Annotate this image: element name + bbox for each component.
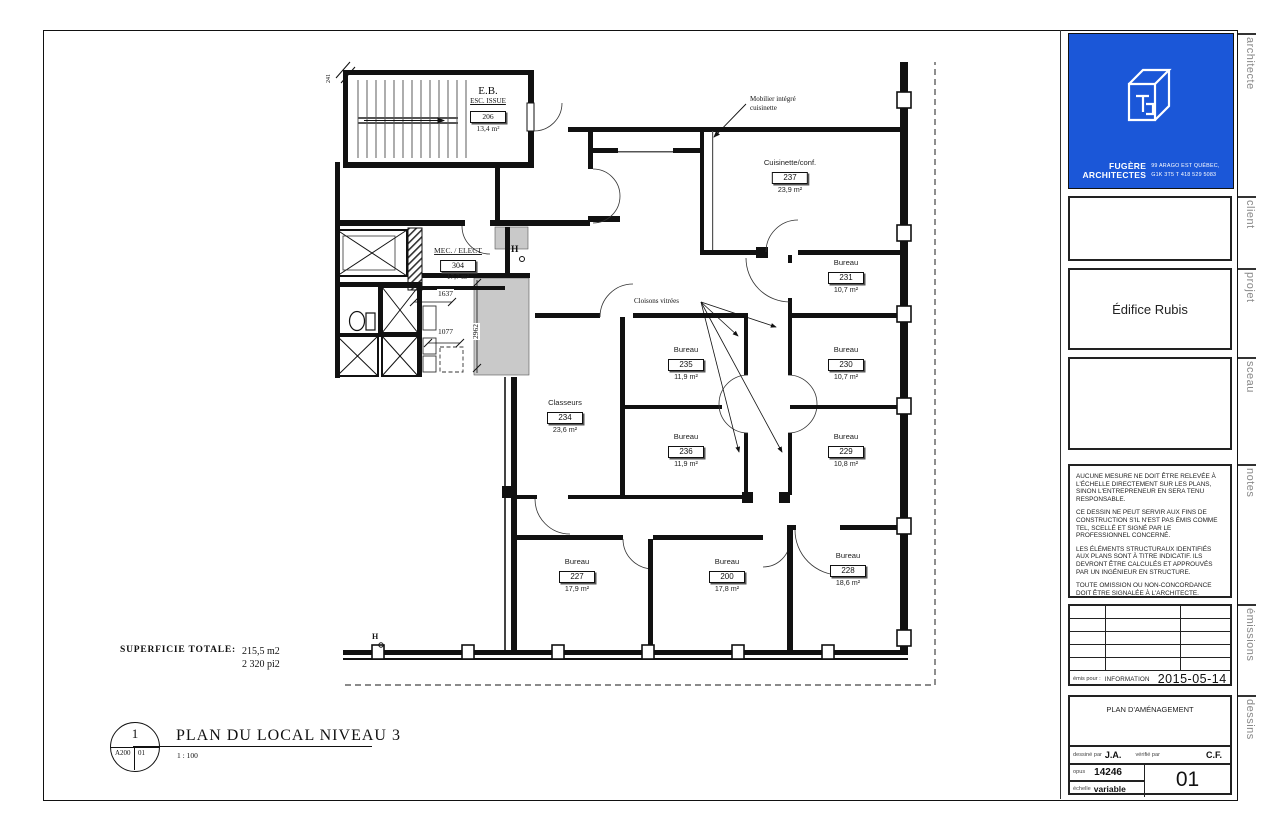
side-label-sceau: sceau (1240, 361, 1256, 393)
room-area: 23,6 m² (547, 425, 583, 434)
room-name: E.B. (470, 85, 506, 97)
dimension-2962: 2962 (471, 323, 480, 340)
room-name: Bureau (709, 557, 745, 566)
dessins-section: PLAN D'AMÉNAGEMENT dessiné par J.A. véri… (1068, 695, 1232, 795)
room-number-tag: 206 (470, 111, 506, 123)
superficie-label: SUPERFICIE TOTALE: (120, 645, 236, 671)
opus-value: 14246 (1094, 767, 1122, 778)
room-label-231: Bureau23110,7 m² (828, 258, 864, 294)
room-area: 23,9 m² (764, 185, 816, 194)
room-label-229: Bureau22910,8 m² (828, 432, 864, 468)
room-name: Classeurs (547, 398, 583, 407)
side-label-architecte: architecte (1240, 37, 1256, 90)
annotation-mobilier: Mobilier intégré cuisinette (750, 95, 796, 112)
room-area: 11,9 m² (668, 459, 704, 468)
room-number-tag: 228 (830, 565, 866, 577)
room-area: 10,7 m² (828, 285, 864, 294)
drawn-by-value: J.A. (1105, 750, 1122, 760)
side-label-tick (1238, 268, 1256, 270)
side-label-dessins: dessins (1240, 699, 1256, 740)
room-label-stair: E.B. ESC. ISSUE 206 13,4 m² (470, 85, 506, 133)
room-number-tag: 227 (559, 571, 595, 583)
side-label-tick (1238, 695, 1256, 697)
dimension-241: 241 (326, 73, 332, 84)
note-paragraph: LES ÉLÉMENTS STRUCTURAUX IDENTIFIÉS AUX … (1076, 546, 1224, 576)
emissions-section: émis pour : INFORMATION 2015-05-14 (1068, 604, 1232, 686)
side-label-tick (1238, 357, 1256, 359)
room-label-227: Bureau22717,9 m² (559, 557, 595, 593)
emis-pour-label: émis pour : (1073, 676, 1101, 682)
emis-pour-value: INFORMATION (1105, 676, 1150, 683)
room-label-228: Bureau22818,6 m² (830, 551, 866, 587)
room-label-mec: MEC. / ELECT 304 17,7 m² (434, 246, 482, 282)
notes-section: AUCUNE MESURE NE DOIT ÊTRE RELEVÉE À L'É… (1068, 464, 1232, 598)
room-area: 10,7 m² (828, 372, 864, 381)
hose-bibb-symbol: H (372, 632, 378, 641)
room-number-tag: 230 (828, 359, 864, 371)
side-label-notes: notes (1240, 468, 1256, 497)
room-number-tag: 200 (709, 571, 745, 583)
client-section (1068, 196, 1232, 261)
room-label-230: Bureau23010,7 m² (828, 345, 864, 381)
project-section: Édifice Rubis (1068, 268, 1232, 350)
sheet-ref-sub: 01 (138, 749, 145, 757)
room-area: 17,7 m² (434, 273, 482, 282)
room-area: 17,9 m² (559, 584, 595, 593)
room-name: Cuisinette/conf. (764, 158, 816, 167)
sheet-ref: A200 (115, 749, 131, 757)
dimension-1637: 1637 (437, 289, 454, 298)
side-label-tick (1238, 604, 1256, 606)
note-paragraph: TOUTE OMISSION OU NON-CONCORDANCE DOIT Ê… (1076, 582, 1224, 597)
drawing-sheet: Cuisinette/conf.23723,9 m²Bureau23110,7 … (0, 0, 1280, 828)
superficie-m2: 215,5 m2 (242, 645, 280, 658)
room-area: 11,9 m² (668, 372, 704, 381)
note-paragraph: CE DESSIN NE PEUT SERVIR AUX FINS DE CON… (1076, 509, 1224, 539)
dimension-1077: 1077 (437, 327, 454, 336)
side-label-tick (1238, 196, 1256, 198)
emission-date: 2015-05-14 (1158, 672, 1227, 686)
opus-label: opus (1073, 769, 1085, 775)
titleblock-separator (1060, 30, 1061, 799)
sheet-number: 01 (1144, 763, 1230, 797)
room-area: 10,8 m² (828, 459, 864, 468)
room-name: Bureau (830, 551, 866, 560)
room-subname: ESC. ISSUE (470, 97, 506, 106)
room-name: Bureau (828, 345, 864, 354)
architect-logo-block: FUGÈRE ARCHITECTES 99 ARAGO EST QUÉBEC, … (1068, 33, 1234, 189)
firm-address-line2: G1K 3T5 T 418 529 5083 (1151, 171, 1219, 180)
room-name: Bureau (828, 258, 864, 267)
room-area: 13,4 m² (470, 124, 506, 133)
verified-by-value: C.F. (1206, 750, 1222, 760)
side-label-projet: projet (1240, 272, 1256, 303)
scale-value: variable (1094, 784, 1126, 794)
verified-by-label: vérifié par (1135, 752, 1160, 758)
view-scale: 1 : 100 (177, 751, 198, 760)
fugere-cube-logo-icon (1119, 64, 1183, 138)
scale-label: échelle (1073, 786, 1091, 792)
superficie-summary: SUPERFICIE TOTALE: 215,5 m2 2 320 pi2 (120, 645, 280, 671)
room-name: Bureau (828, 432, 864, 441)
room-name: Bureau (559, 557, 595, 566)
room-name: Bureau (668, 345, 704, 354)
view-title: PLAN DU LOCAL NIVEAU 3 (176, 727, 401, 745)
room-number-tag: 237 (772, 172, 808, 184)
room-label-236: Bureau23611,9 m² (668, 432, 704, 468)
title-underline (133, 746, 372, 747)
superficie-pi2: 2 320 pi2 (242, 658, 280, 671)
hose-bibb-symbol: H (511, 245, 518, 255)
room-label-234: Classeurs23423,6 m² (547, 398, 583, 434)
room-number-tag: 235 (668, 359, 704, 371)
sheet-border (43, 30, 1238, 801)
side-label-emissions: émissions (1240, 608, 1256, 661)
room-label-235: Bureau23511,9 m² (668, 345, 704, 381)
room-area: 17,8 m² (709, 584, 745, 593)
room-number-tag: 234 (547, 412, 583, 424)
room-name: Bureau (668, 432, 704, 441)
note-paragraph: AUCUNE MESURE NE DOIT ÊTRE RELEVÉE À L'É… (1076, 473, 1224, 503)
side-label-tick (1238, 464, 1256, 466)
room-number-tag: 304 (440, 260, 476, 272)
room-number-tag: 236 (668, 446, 704, 458)
room-number-tag: 231 (828, 272, 864, 284)
room-label-237: Cuisinette/conf.23723,9 m² (764, 158, 816, 194)
side-label-tick (1238, 33, 1256, 35)
seal-section (1068, 357, 1232, 450)
room-area: 18,6 m² (830, 578, 866, 587)
side-label-client: client (1240, 200, 1256, 229)
room-label-200: Bureau20017,8 m² (709, 557, 745, 593)
firm-name-line2: ARCHITECTES (1082, 171, 1146, 180)
project-name: Édifice Rubis (1112, 302, 1188, 317)
annotation-cloisons: Cloisons vitrées (634, 297, 679, 306)
room-number-tag: 229 (828, 446, 864, 458)
drawn-by-label: dessiné par (1073, 752, 1102, 758)
sheet-title: PLAN D'AMÉNAGEMENT (1070, 705, 1230, 714)
detail-number: 1 (111, 726, 159, 742)
room-name: MEC. / ELECT (434, 246, 482, 255)
firm-address-line1: 99 ARAGO EST QUÉBEC, (1151, 162, 1219, 171)
